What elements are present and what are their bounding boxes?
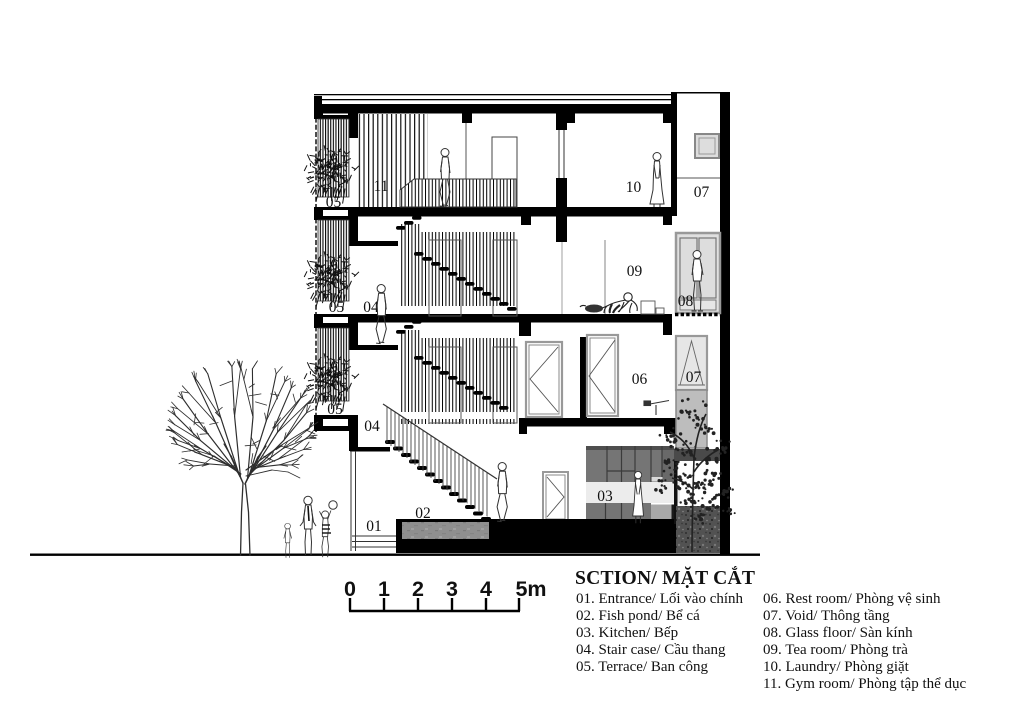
svg-text:08. Glass floor/ Sàn kính: 08. Glass floor/ Sàn kính bbox=[763, 625, 913, 641]
svg-text:4: 4 bbox=[480, 577, 492, 601]
svg-text:06: 06 bbox=[632, 371, 648, 388]
svg-text:10: 10 bbox=[626, 179, 642, 196]
svg-text:1: 1 bbox=[378, 577, 390, 601]
svg-text:03: 03 bbox=[597, 488, 613, 505]
svg-text:05. Terrace/ Ban công: 05. Terrace/ Ban công bbox=[576, 659, 708, 675]
svg-text:SCTION/ MẶT CẮT: SCTION/ MẶT CẮT bbox=[575, 567, 755, 589]
svg-text:2: 2 bbox=[412, 577, 424, 601]
svg-text:04: 04 bbox=[364, 418, 380, 435]
svg-text:08: 08 bbox=[678, 293, 694, 310]
svg-text:07: 07 bbox=[694, 184, 710, 201]
svg-text:06. Rest room/ Phòng vệ sinh: 06. Rest room/ Phòng vệ sinh bbox=[763, 591, 941, 607]
svg-text:11: 11 bbox=[374, 178, 389, 195]
svg-text:01: 01 bbox=[366, 518, 382, 535]
svg-text:3: 3 bbox=[446, 577, 458, 601]
svg-text:07: 07 bbox=[686, 369, 702, 386]
svg-text:0: 0 bbox=[344, 577, 356, 601]
svg-text:09: 09 bbox=[627, 263, 643, 280]
svg-text:5m: 5m bbox=[515, 577, 546, 601]
svg-text:02. Fish pond/ Bể cá: 02. Fish pond/ Bể cá bbox=[576, 608, 700, 624]
svg-text:09. Tea room/ Phòng trà: 09. Tea room/ Phòng trà bbox=[763, 642, 908, 658]
svg-text:03. Kitchen/ Bếp: 03. Kitchen/ Bếp bbox=[576, 625, 678, 641]
svg-text:11. Gym room/ Phòng tập thể dụ: 11. Gym room/ Phòng tập thể dục bbox=[763, 676, 967, 692]
svg-text:02: 02 bbox=[415, 505, 431, 522]
svg-text:10. Laundry/ Phòng giặt: 10. Laundry/ Phòng giặt bbox=[763, 659, 910, 675]
svg-text:01. Entrance/ Lối vào chính: 01. Entrance/ Lối vào chính bbox=[576, 591, 744, 607]
svg-text:05: 05 bbox=[326, 194, 342, 211]
svg-text:07. Void/ Thông tầng: 07. Void/ Thông tầng bbox=[763, 608, 890, 624]
svg-text:04. Stair case/ Cầu thang: 04. Stair case/ Cầu thang bbox=[576, 642, 726, 658]
